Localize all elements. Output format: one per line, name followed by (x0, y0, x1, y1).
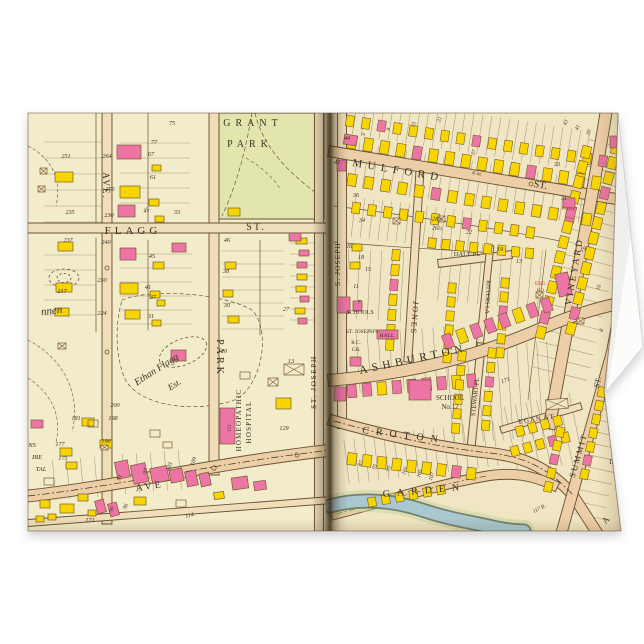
building (446, 311, 455, 322)
building (297, 262, 307, 268)
building (427, 238, 436, 249)
building (566, 150, 576, 162)
building (437, 376, 447, 390)
building (486, 362, 495, 373)
street-label-flagg: FLAGG (105, 225, 162, 237)
building (391, 264, 400, 276)
greeting-card-product-photo: AVE.PARKST. JOSEPHFLAGGST.GRANTPARKAVEHO… (0, 0, 644, 644)
building (393, 122, 403, 134)
map-label: IBE (31, 454, 42, 461)
hatched-building (40, 168, 47, 174)
building (66, 462, 77, 469)
building (347, 173, 358, 186)
building (298, 318, 307, 324)
building (367, 204, 376, 216)
map-label: HALL (380, 333, 395, 339)
building (498, 199, 509, 212)
map-label: 235 (65, 209, 74, 216)
building (548, 207, 559, 220)
building (363, 138, 374, 152)
map-label: 256 (105, 186, 115, 193)
building (448, 283, 457, 294)
building (462, 218, 471, 230)
building (440, 130, 450, 142)
building (436, 463, 446, 476)
map-label: 11 (353, 284, 359, 290)
school-no12-building (409, 380, 431, 400)
map-label: 264 (102, 153, 111, 160)
building (117, 145, 141, 159)
building (481, 420, 490, 431)
map-label: 61 (150, 174, 156, 181)
engine-house-label: ENG. (535, 281, 547, 287)
building (509, 162, 520, 176)
building (484, 391, 493, 402)
building (120, 248, 136, 260)
building (483, 243, 492, 254)
map-label: HO. (537, 288, 546, 294)
map-label: 230 (97, 277, 107, 284)
map-label: NS (27, 442, 36, 449)
map-label: 230 (104, 212, 114, 219)
building (488, 348, 497, 359)
building (391, 458, 401, 471)
building (543, 481, 553, 492)
building (483, 405, 492, 416)
folded-greeting-card-vintage-map: AVE.PARKST. JOSEPHFLAGGST.GRANTPARKAVEHO… (0, 0, 644, 644)
building (428, 148, 439, 162)
building (582, 455, 592, 466)
building (228, 316, 239, 323)
building (347, 384, 357, 398)
building (60, 504, 74, 513)
map-label: 28½ (432, 216, 443, 224)
building (120, 186, 140, 198)
building (223, 290, 233, 297)
building (157, 300, 165, 306)
building (424, 127, 434, 139)
building (383, 206, 392, 218)
building (276, 398, 291, 409)
building (88, 510, 96, 516)
map-label: 41 (145, 284, 151, 291)
building (494, 222, 503, 234)
building (228, 208, 240, 216)
map-label: 13 (288, 358, 294, 365)
map-label: 34 (358, 217, 365, 224)
building (535, 145, 545, 157)
hospital-label: HOMEOPATHIC (235, 389, 243, 452)
building (430, 187, 441, 200)
map-label: 37 (149, 294, 157, 301)
map-left-page: AVE.PARKST. JOSEPHFLAGGST.GRANTPARKAVEHO… (27, 113, 332, 531)
map-label: 111 (227, 424, 233, 432)
building (392, 249, 401, 261)
building (347, 452, 357, 465)
building (78, 494, 88, 501)
hatched-building (38, 186, 45, 192)
building (253, 480, 266, 491)
building (351, 202, 360, 214)
building (451, 465, 461, 478)
map-label: 19 (497, 247, 503, 253)
building (31, 420, 43, 428)
map-label: 175 (58, 455, 67, 462)
building (152, 165, 161, 171)
map-label: TAL (36, 466, 47, 473)
map-label: 177 (55, 441, 65, 448)
building (350, 262, 360, 269)
building (214, 491, 225, 499)
building (456, 365, 465, 376)
building (501, 278, 510, 289)
map-label: 46 (224, 237, 231, 244)
schools-label: SCHOOLS (346, 310, 373, 316)
map-label: 38 (222, 268, 230, 275)
building (447, 297, 456, 308)
building (415, 211, 424, 223)
building (390, 279, 399, 291)
map-label: 31 (147, 313, 154, 320)
hatched-building (284, 364, 304, 375)
map-label: 33 (553, 162, 560, 168)
building (526, 165, 537, 179)
bottom-edge-shade (28, 518, 622, 531)
hatched-building (546, 398, 569, 410)
building (481, 196, 492, 209)
building (392, 380, 402, 394)
building (446, 215, 455, 227)
building (296, 286, 306, 292)
map-label: R.C. (351, 340, 361, 346)
building (380, 179, 391, 192)
building (385, 339, 394, 351)
building (361, 117, 371, 129)
map-label: 27 (283, 306, 290, 313)
building (455, 380, 464, 391)
map-label: ST. (533, 179, 548, 192)
building (510, 224, 519, 236)
building (297, 274, 307, 280)
building (460, 154, 471, 168)
building (558, 170, 569, 184)
building (363, 176, 374, 189)
building (231, 476, 249, 490)
map-label: 15 (365, 267, 371, 273)
building (441, 239, 450, 250)
building (395, 143, 406, 157)
building (455, 241, 464, 252)
building (477, 157, 488, 171)
street-label-park: PARK (214, 339, 225, 377)
building (387, 309, 396, 321)
building (581, 213, 592, 226)
building (519, 142, 529, 154)
building (125, 310, 140, 319)
building (155, 216, 164, 222)
map-label: 67 (148, 151, 155, 158)
building (511, 246, 520, 257)
building (295, 308, 305, 314)
building (580, 468, 590, 479)
building (172, 243, 186, 252)
building (472, 135, 482, 147)
building (456, 132, 466, 144)
building (551, 147, 561, 159)
building (546, 467, 556, 478)
map-label: 45 (149, 253, 155, 260)
building (451, 423, 460, 434)
map-label: 198 (108, 415, 118, 422)
school-no12-label: SCHOOL (436, 394, 464, 402)
building (379, 140, 390, 154)
map-label: 240 (101, 239, 111, 246)
building (388, 294, 397, 306)
building (531, 204, 542, 217)
building (299, 250, 309, 256)
building (447, 190, 458, 203)
building (514, 201, 525, 214)
hatched-building (101, 445, 108, 450)
map-label: 251 (61, 153, 70, 160)
building (412, 146, 423, 160)
building (552, 440, 562, 451)
map-label: ST. JOSEPH'S (346, 329, 378, 335)
map-label: ST. (246, 222, 265, 233)
map-label: 22 (466, 230, 472, 236)
map-label: 77 (151, 139, 158, 146)
grant-park-label: GRANT (223, 118, 282, 129)
hatched-building (393, 218, 400, 224)
map-label: 217 (57, 288, 67, 295)
building (362, 383, 372, 397)
map-label: 33 (173, 209, 180, 216)
building (367, 497, 376, 507)
building (555, 426, 565, 437)
hatched-building (577, 318, 584, 324)
map-label: 75 (169, 120, 175, 127)
map-label: 13 (516, 259, 522, 265)
building (500, 292, 509, 303)
building (444, 151, 455, 165)
building (153, 262, 164, 269)
building (377, 382, 387, 396)
building (352, 244, 362, 251)
map-label: 200 (110, 402, 120, 409)
card-front: AVE.PARKST. JOSEPHFLAGGST.GRANTPARKAVEHO… (0, 0, 644, 644)
greeting-card: AVE.PARKST. JOSEPHFLAGGST.GRANTPARKAVEHO… (0, 0, 644, 644)
hatched-building (268, 378, 278, 386)
building (152, 320, 161, 326)
map-label: 26½ (432, 225, 443, 233)
street-label-dale-pl: DALE PL (454, 251, 481, 258)
map-label: 18 (358, 255, 364, 261)
building (118, 205, 135, 217)
map-label: CH. (352, 347, 361, 353)
hatched-building (58, 343, 66, 349)
building (289, 233, 301, 241)
map-label: HOSPITAL (245, 401, 253, 444)
building (503, 140, 513, 152)
building (397, 182, 408, 195)
building (585, 441, 595, 452)
building (526, 226, 535, 238)
building (466, 467, 476, 480)
map-label: 224 (97, 310, 106, 317)
building (134, 497, 146, 505)
building (485, 377, 494, 388)
map-label: No.12 (441, 403, 459, 411)
building (40, 500, 50, 508)
book-fold-gutter (312, 113, 348, 531)
building (487, 137, 497, 149)
map-label: PARK (227, 139, 273, 150)
building (493, 159, 504, 173)
building (525, 248, 534, 259)
map-label: 20 (221, 348, 228, 355)
map-label: 237 (63, 237, 73, 244)
building (300, 296, 309, 302)
map-label: 36 (352, 193, 359, 199)
building (149, 199, 159, 206)
building (414, 185, 425, 198)
map-label: 31 (560, 196, 567, 202)
building (120, 283, 138, 294)
building (55, 172, 73, 182)
building (549, 454, 559, 465)
building (497, 334, 506, 345)
building (478, 220, 487, 232)
building (464, 193, 475, 206)
map-label: 30 (223, 302, 231, 309)
map-label: 181 (71, 415, 80, 422)
building (496, 348, 505, 359)
map-label: 129 (279, 425, 288, 432)
map-right-page: MULFORDST.6 in.S. JOSEPHJONESDALE PLRITT… (326, 94, 643, 531)
map-label: 190 (101, 438, 111, 445)
